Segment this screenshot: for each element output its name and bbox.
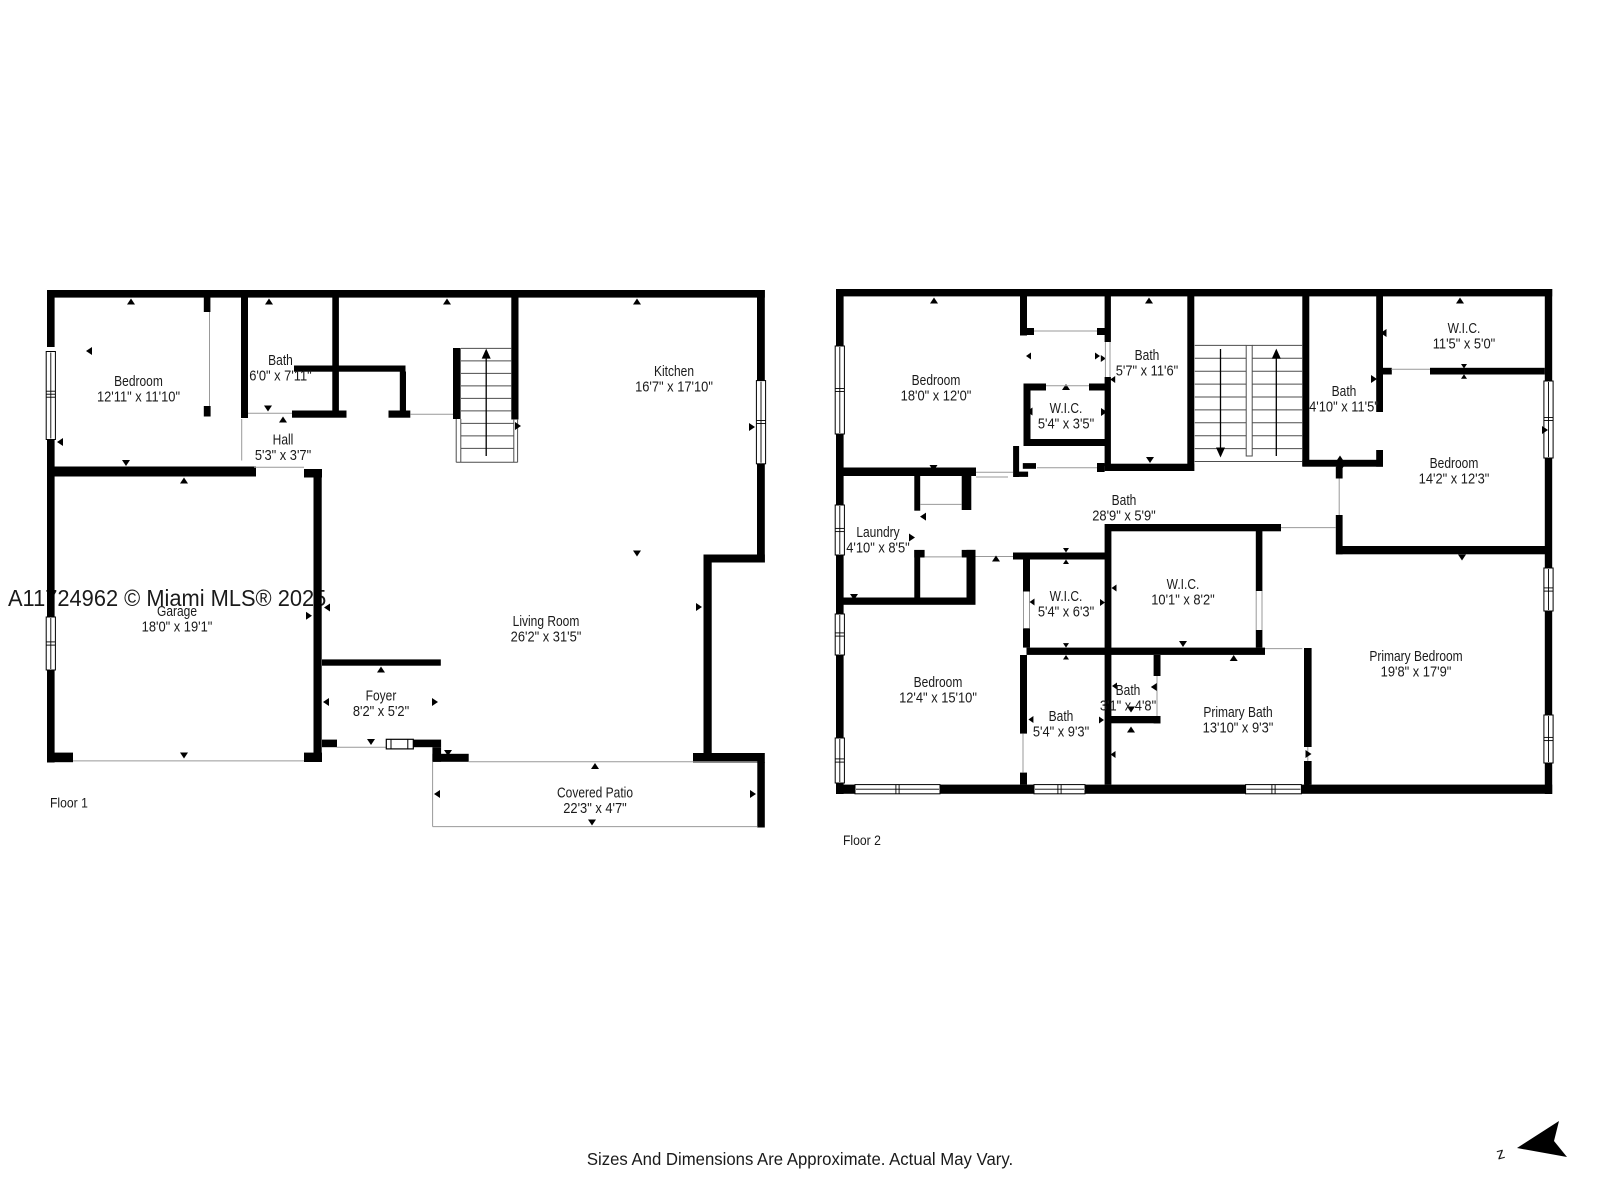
- svg-text:10'1" x 8'2": 10'1" x 8'2": [1151, 591, 1215, 608]
- svg-text:12'11" x 11'10": 12'11" x 11'10": [97, 388, 180, 405]
- svg-text:8'2" x 5'2": 8'2" x 5'2": [353, 702, 409, 719]
- svg-text:14'2" x 12'3": 14'2" x 12'3": [1419, 470, 1490, 487]
- svg-text:4'10" x 8'5": 4'10" x 8'5": [846, 539, 910, 556]
- svg-text:18'0" x 12'0": 18'0" x 12'0": [901, 387, 972, 404]
- svg-text:11'5" x 5'0": 11'5" x 5'0": [1433, 335, 1496, 352]
- svg-text:12'4" x 15'10": 12'4" x 15'10": [899, 689, 977, 706]
- svg-text:Floor 1: Floor 1: [50, 795, 88, 811]
- svg-text:16'7" x 17'10": 16'7" x 17'10": [635, 378, 713, 395]
- svg-text:Floor 2: Floor 2: [843, 832, 881, 848]
- svg-text:26'2" x 31'5": 26'2" x 31'5": [511, 628, 582, 645]
- svg-text:19'8" x 17'9": 19'8" x 17'9": [1381, 663, 1452, 680]
- svg-text:22'3" x 4'7": 22'3" x 4'7": [563, 799, 627, 816]
- svg-text:5'4" x 9'3": 5'4" x 9'3": [1033, 723, 1089, 740]
- svg-text:28'9" x 5'9": 28'9" x 5'9": [1092, 507, 1156, 524]
- svg-text:5'3" x 3'7": 5'3" x 3'7": [255, 446, 311, 463]
- svg-text:5'4" x 3'5": 5'4" x 3'5": [1038, 415, 1094, 432]
- svg-text:Sizes And Dimensions Are Appro: Sizes And Dimensions Are Approximate. Ac…: [587, 1148, 1013, 1169]
- svg-text:6'0" x 7'11": 6'0" x 7'11": [249, 367, 312, 384]
- svg-text:13'10" x 9'3": 13'10" x 9'3": [1203, 719, 1274, 736]
- svg-text:4'10" x 11'5": 4'10" x 11'5": [1309, 398, 1379, 415]
- svg-text:5'4" x 6'3": 5'4" x 6'3": [1038, 603, 1094, 620]
- svg-text:18'0" x 19'1": 18'0" x 19'1": [142, 618, 213, 635]
- svg-text:5'7" x 11'6": 5'7" x 11'6": [1116, 362, 1179, 379]
- svg-text:3'1" x 4'8": 3'1" x 4'8": [1100, 697, 1156, 714]
